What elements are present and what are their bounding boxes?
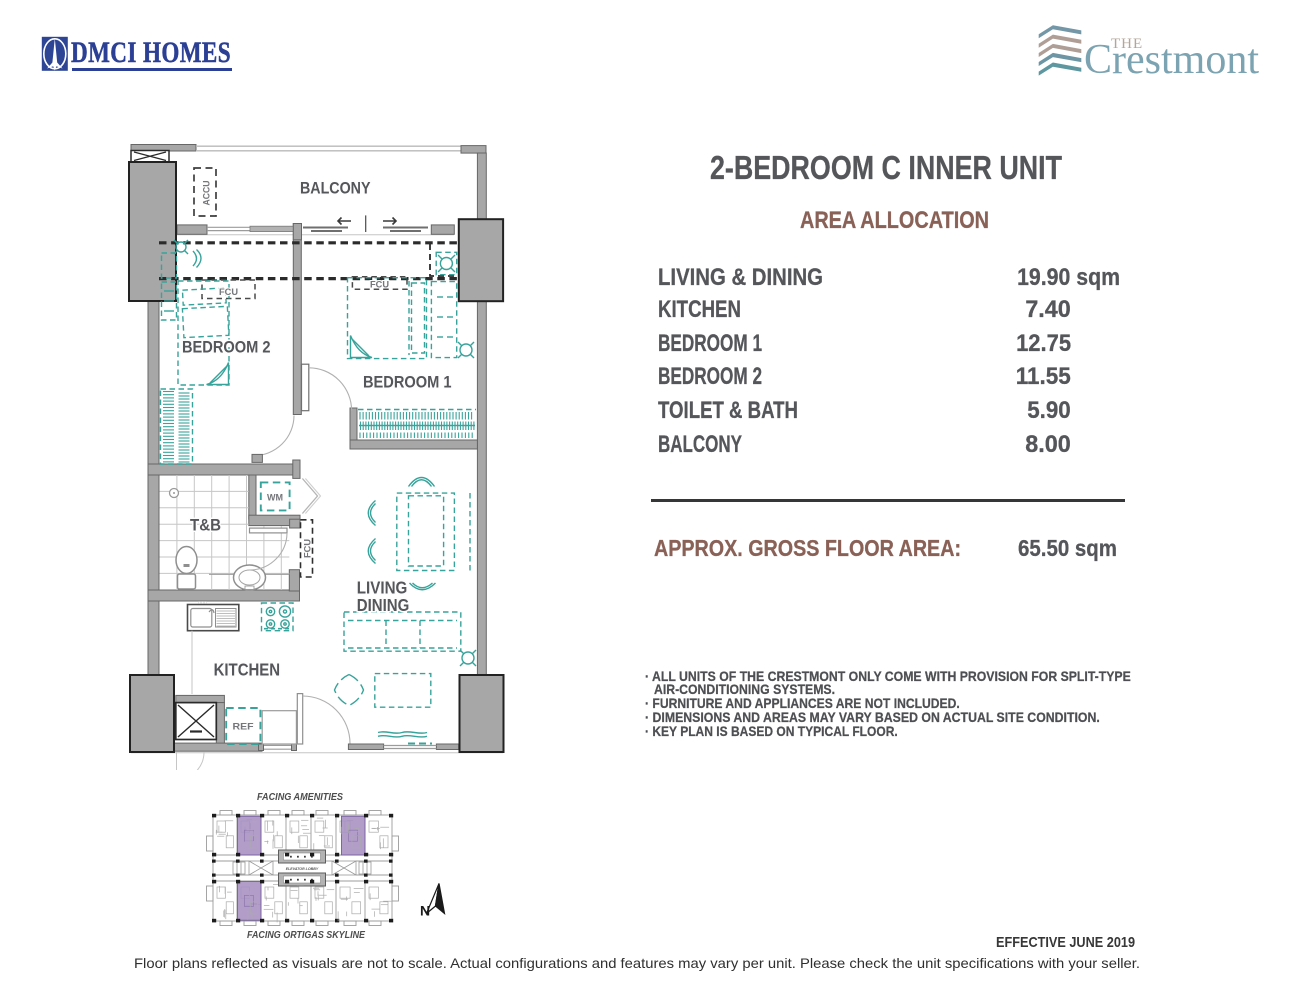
svg-text:T&B: T&B — [190, 515, 221, 534]
svg-text:FCU: FCU — [303, 539, 313, 558]
svg-text:KITCHEN: KITCHEN — [214, 660, 281, 680]
svg-text:BALCONY: BALCONY — [300, 178, 371, 197]
svg-text:REF: REF — [233, 722, 254, 733]
svg-text:N: N — [420, 903, 430, 919]
svg-text:FCU: FCU — [219, 287, 238, 297]
svg-text:DINING: DINING — [357, 595, 410, 615]
svg-text:FCU: FCU — [370, 280, 389, 290]
svg-text:BEDROOM 2: BEDROOM 2 — [182, 337, 271, 356]
svg-text:ACCU: ACCU — [202, 181, 212, 206]
svg-text:BEDROOM 1: BEDROOM 1 — [363, 372, 452, 391]
svg-text:□□□: □□□ — [198, 600, 207, 606]
svg-text:WM: WM — [267, 493, 283, 504]
svg-text:ELEVATOR LOBBY: ELEVATOR LOBBY — [286, 867, 319, 871]
